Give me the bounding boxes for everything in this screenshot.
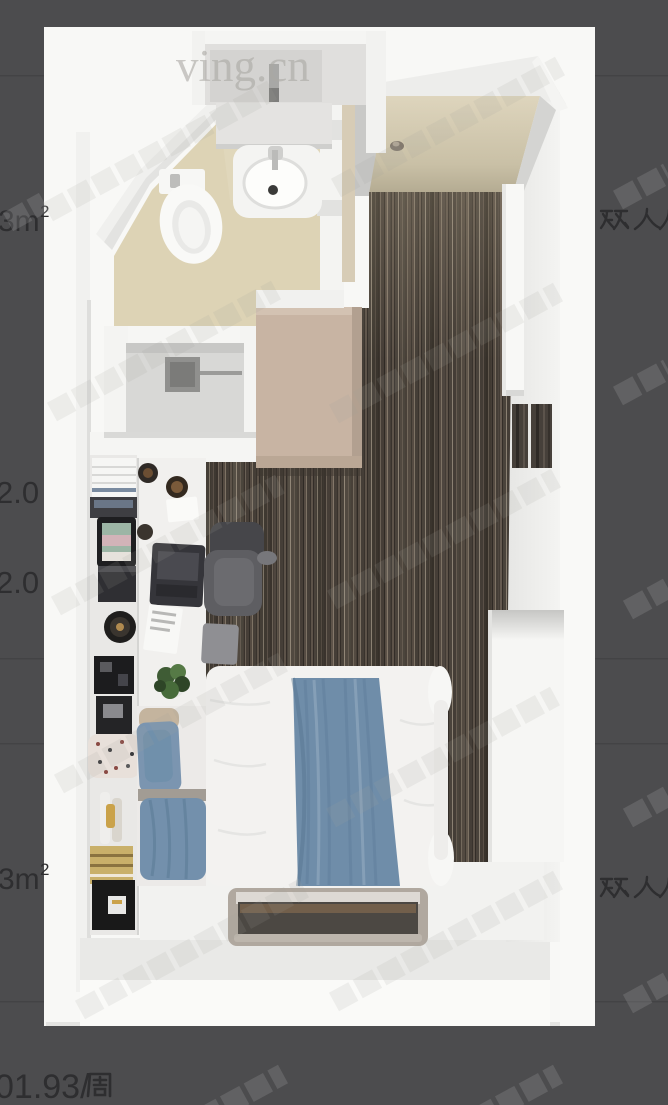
svg-text:2.0: 2.0 (0, 475, 39, 510)
svg-text:3m: 3m (0, 863, 40, 896)
svg-text:2.0: 2.0 (0, 565, 39, 600)
svg-text:ving.cn: ving.cn (176, 41, 310, 91)
svg-text:2: 2 (40, 860, 49, 879)
svg-text:01.93/: 01.93/ (0, 1068, 90, 1105)
